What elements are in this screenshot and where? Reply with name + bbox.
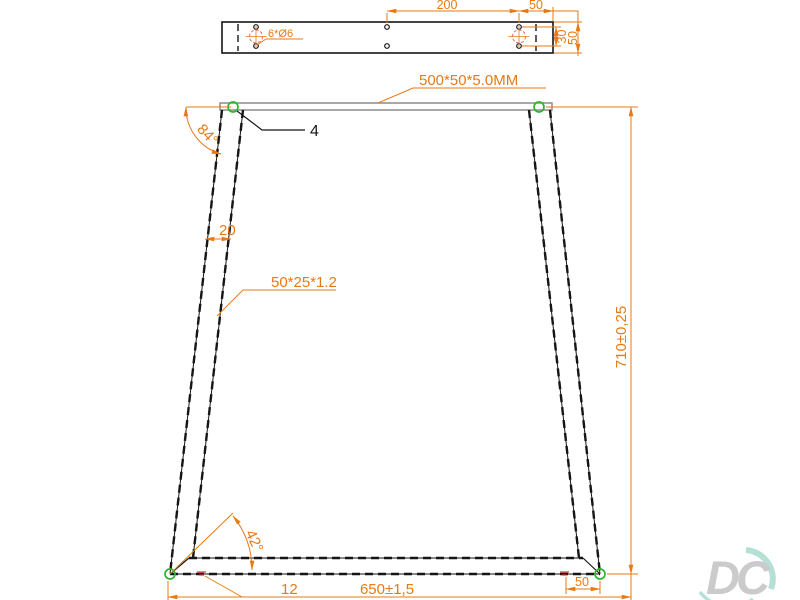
item-callout-leader (237, 111, 305, 130)
dim-12-leader (205, 576, 242, 597)
hole-bottom-center (385, 44, 390, 49)
right-leg-inner-edge-dashes (529, 110, 579, 558)
dim-20-text: 20 (219, 222, 236, 239)
angle-42-text: 42° (242, 527, 267, 555)
dim-50-end-text: 50 (529, 0, 543, 12)
dim-50-height-text: 50 (566, 31, 580, 45)
angle-42-ray (170, 513, 233, 574)
front-view: 500*50*5.0MM 4 84° 20 50*25*1.2 710±0,25… (165, 72, 638, 600)
engineering-drawing-canvas: 6*Ø6 200 50 30 50 (0, 0, 800, 600)
tube-spec-leader (217, 290, 336, 316)
tube-spec-text: 50*25*1.2 (271, 274, 337, 291)
bottom-bar (170, 558, 600, 574)
top-view: 6*Ø6 200 50 30 50 (222, 0, 582, 56)
dim-foot-text: 50 (575, 575, 589, 589)
watermark: DC (700, 550, 773, 600)
engineering-drawing-page: 6*Ø6 200 50 30 50 (0, 0, 800, 600)
plate-spec-text: 500*50*5.0MM (419, 72, 518, 89)
dim-12-text: 12 (281, 581, 298, 598)
right-leg (529, 110, 600, 574)
left-leg-inner-edge-dashes (193, 110, 243, 558)
item-callout-text: 4 (310, 123, 319, 140)
top-plate (220, 103, 552, 110)
watermark-logo-text: DC (706, 551, 771, 600)
bottom-bar-miter-right (583, 558, 600, 574)
dim-200-text: 200 (437, 0, 458, 12)
holes-label: 6*Ø6 (268, 28, 293, 40)
dim-650-text: 650±1,5 (360, 581, 414, 598)
left-leg (170, 110, 243, 574)
hole-top-center (385, 25, 390, 30)
dim-710-text: 710±0,25 (613, 306, 630, 368)
plate-spec-leader (378, 88, 546, 103)
angle-84-text: 84° (193, 121, 221, 149)
